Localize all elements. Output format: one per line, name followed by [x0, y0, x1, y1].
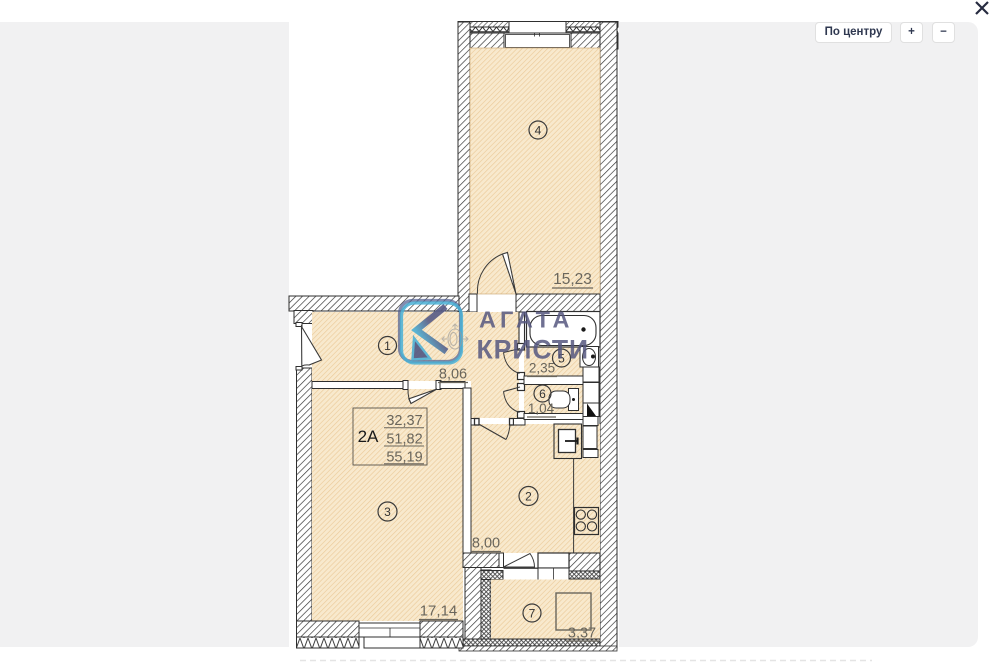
svg-text:1: 1	[384, 339, 391, 353]
svg-text:КРИСТИ: КРИСТИ	[477, 335, 590, 365]
svg-text:2А: 2А	[358, 427, 379, 446]
svg-text:8,00: 8,00	[472, 536, 500, 552]
svg-text:6: 6	[539, 387, 546, 401]
svg-text:51,82: 51,82	[386, 432, 422, 448]
svg-text:1,04: 1,04	[528, 401, 555, 416]
svg-text:17,14: 17,14	[420, 603, 458, 620]
svg-text:15,23: 15,23	[553, 271, 592, 288]
svg-text:АГАТА: АГАТА	[479, 307, 573, 333]
svg-text:32,37: 32,37	[386, 413, 422, 429]
svg-text:7: 7	[529, 607, 536, 621]
svg-text:55,19: 55,19	[386, 450, 422, 466]
svg-text:4: 4	[535, 124, 542, 138]
svg-text:2: 2	[525, 490, 532, 504]
svg-text:8,06: 8,06	[439, 367, 467, 383]
svg-text:3: 3	[384, 505, 391, 519]
svg-text:3,37: 3,37	[568, 626, 596, 642]
